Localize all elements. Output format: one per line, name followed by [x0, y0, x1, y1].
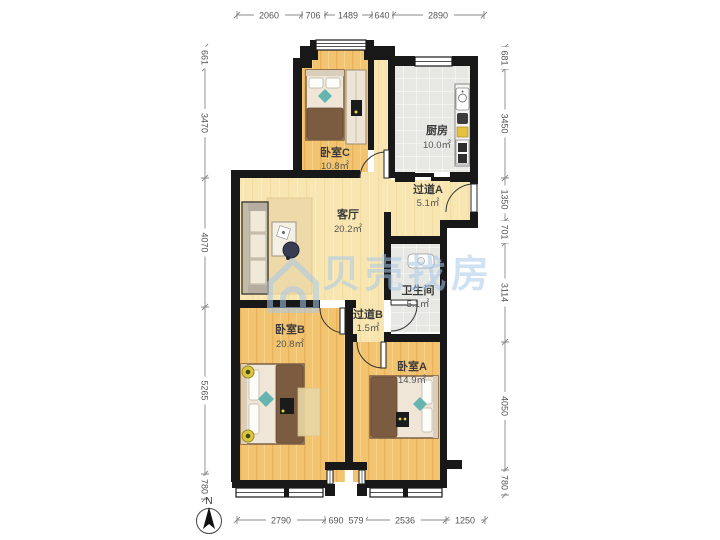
dim-bottom-1: 690 — [328, 516, 343, 526]
dim-bottom-4: 1250 — [455, 516, 475, 526]
dim-bottom-0: 2790 — [271, 516, 291, 526]
bathroom-area: 5.1㎡ — [407, 299, 430, 310]
floor-plan: 卧室C 10.8㎡ 厨房 10.0㎡ 过道A 5.1㎡ 客厅 20.2㎡ 卫生间… — [0, 0, 720, 540]
dim-top-4: 2890 — [428, 11, 448, 21]
hallway-a-area: 5.1㎡ — [417, 198, 440, 209]
bedroom-c-tv — [351, 100, 362, 116]
compass-needle-icon — [203, 507, 215, 529]
bedroom-a-door-floor — [357, 334, 384, 342]
dim-bottom-3: 2536 — [395, 516, 415, 526]
dim-chain-bottom: 2790 690 579 2536 1250 — [234, 514, 488, 526]
compass: N — [197, 496, 222, 534]
dim-right-6: 780 — [500, 475, 510, 490]
dim-top-3: 640 — [374, 11, 389, 21]
bedroom-b-area: 20.8㎡ — [276, 339, 304, 350]
bedroom-c-label: 卧室C — [320, 145, 350, 159]
bedroom-a-area: 14.9㎡ — [398, 375, 426, 386]
kitchen-pot — [457, 113, 468, 124]
living-hall-junction-floor — [384, 178, 391, 212]
dim-chain-top: 2060 706 1489 640 2890 — [234, 9, 487, 21]
living-room-sofa — [242, 202, 268, 294]
hallway-b-area: 1.5㎡ — [357, 323, 380, 334]
dim-right-5: 4050 — [500, 396, 510, 416]
kitchen-counter — [455, 84, 470, 166]
dim-top-1: 706 — [305, 11, 320, 21]
dim-right-2: 1350 — [500, 189, 510, 209]
hallway-a-floor-lower — [391, 220, 447, 236]
bedroom-c-area: 10.8㎡ — [321, 161, 349, 172]
dim-left-2: 4070 — [200, 232, 210, 252]
compass-north-label: N — [205, 496, 212, 507]
dim-right-0: 681 — [500, 50, 510, 65]
dim-right-3: 701 — [500, 224, 510, 239]
dim-left-3: 5265 — [200, 380, 210, 400]
bedroom-b-label: 卧室B — [275, 322, 305, 336]
bedroom-c-bay-window — [316, 40, 366, 50]
dim-left-1: 3470 — [200, 113, 210, 133]
bedroom-a-window — [370, 488, 442, 497]
bedroom-b-window — [236, 488, 323, 497]
watermark-text: 贝壳找房 — [322, 254, 494, 296]
dim-left-0: 661 — [200, 50, 210, 65]
living-room-area: 20.2㎡ — [334, 224, 362, 235]
bedroom-b-rug — [298, 388, 320, 436]
floor-plan-page: 卧室C 10.8㎡ 厨房 10.0㎡ 过道A 5.1㎡ 客厅 20.2㎡ 卫生间… — [0, 0, 720, 540]
dim-right-1: 3450 — [500, 113, 510, 133]
living-room-label: 客厅 — [336, 207, 359, 221]
kitchen-sliding-door — [415, 173, 450, 181]
kitchen-label: 厨房 — [426, 123, 448, 137]
bedroom-c-bed — [306, 70, 344, 140]
bedroom-b-bed — [241, 364, 304, 444]
dim-top-0: 2060 — [259, 11, 279, 21]
dim-bottom-2: 579 — [348, 516, 363, 526]
hallway-b-passage-floor — [356, 300, 384, 308]
niche-windows — [327, 470, 365, 484]
dim-chain-right: 681 3450 1350 701 3114 4050 780 — [500, 44, 512, 498]
bedroom-a-label: 卧室A — [397, 359, 427, 373]
kitchen-area: 10.0㎡ — [423, 140, 451, 151]
kitchen-window — [415, 57, 452, 66]
hallway-b-label: 过道B — [353, 307, 383, 321]
hallway-a-label: 过道A — [413, 182, 443, 196]
dim-chain-left: 661 3470 4070 5265 780 — [200, 44, 212, 502]
bedroom-c-wardrobe — [346, 70, 366, 144]
dim-left-4: 780 — [200, 479, 210, 494]
dim-top-2: 1489 — [338, 11, 358, 21]
dim-right-4: 3114 — [500, 283, 510, 302]
bedroom-a-nightstand — [396, 412, 409, 427]
